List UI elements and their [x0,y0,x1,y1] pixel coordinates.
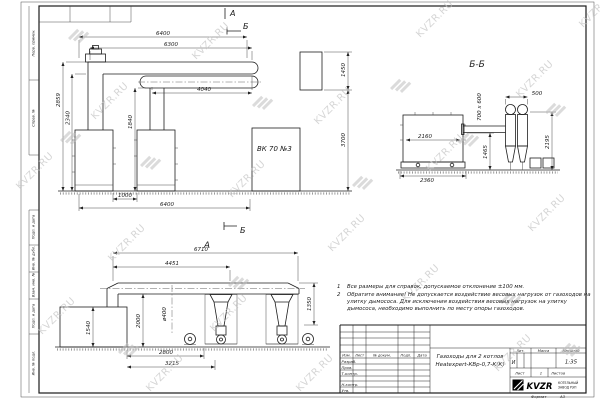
section-bb-title: Б-Б [469,60,485,70]
watermark-text: KVZR.RU [14,151,56,193]
unit-1-fan [217,335,226,344]
drawing-sheet: Перв. примен. Справ. № Подп. и дата Инв.… [0,0,600,400]
margin-label-vzam: Взам. инв. № [32,273,36,298]
technical-drawing-canvas: Перв. примен. Справ. № Подп. и дата Инв.… [0,0,600,400]
dim-1350: 1350 [307,297,313,311]
dim-6400-top: 6400 [156,31,170,37]
margin-strip-top [29,6,39,155]
kvzr-logo-watermark [352,172,373,193]
dim-3700: 3700 [341,133,347,147]
company-line1: КОТЕЛЬНЫЙ [558,380,579,385]
format-value: А3 [559,394,566,399]
cyclone-1-top [506,105,516,115]
watermark-text: KVZR.RU [526,193,568,235]
sheet-edge [21,2,594,397]
drawing-frame [21,2,594,397]
dim-6710: 6710 [194,247,208,253]
row-utv: Утв. [342,388,350,393]
margin-label-podp1: Подп. и дата [32,215,36,239]
dim-500: 500 [532,91,543,97]
unit-1-motor-hub [188,337,192,341]
cyclone-legs [511,162,523,170]
cyclone-2-top [518,105,528,115]
dim-1840: 1840 [128,115,134,129]
watermark-text: KVZR.RU [294,353,336,395]
unit-1-motor [185,334,196,345]
chimney-2-and-lower-duct [140,76,258,130]
cyclone-2-body [518,115,528,147]
margin-label-inv-podl: Инв. № подл. [32,351,36,376]
scale-value: 1:35 [565,360,578,366]
boiler-building [60,307,127,347]
dim-2000: 2000 [136,314,142,328]
col-podp: Подп. [401,353,412,357]
list-label: Лист [514,371,525,376]
row-prov: Пров. [342,365,353,370]
cyclone-1-body [506,115,516,147]
listov-label: Листов [550,371,566,376]
dim-2360: 2360 [420,178,434,184]
unit-2-cyclone [271,295,293,327]
dim-4451: 4451 [165,261,179,267]
fan-box-2 [543,158,554,168]
title-block: Изм. Лист № докум. Подп. Дата Разраб. Пр… [340,325,586,399]
chimney-cap [86,54,106,62]
base-roller-2 [450,163,454,167]
watermark-text: KVZR.RU [89,81,131,123]
kvzr-logo-watermark [390,75,411,96]
watermark-text: KVZR.RU [326,213,368,255]
watermark-text: KVZR.RU [208,293,250,335]
col-data: Дата [416,353,426,357]
main-duct-view-a [107,283,299,307]
notes-block: 1 Все размеры для справок, допускаемое о… [337,284,594,315]
dim-2800: 2800 [159,350,173,356]
kvzr-logo-watermark [545,99,566,120]
section-mark-a-label: А [229,9,235,18]
row-razrab: Разраб. [342,359,357,364]
unit-1-fan-hub [220,338,223,341]
format-label: Формат [531,394,547,399]
unit-2-fan [278,335,287,344]
watermark-layer: KVZR.RU KVZR.RU KVZR.RU KVZR.RU KVZR.RU … [14,0,600,394]
section-mark-b2-line [224,222,237,230]
dim-6300: 6300 [164,42,178,48]
duct-end-riser [300,52,322,90]
unit-2-motor-hub [306,337,310,341]
watermark-text: KVZR.RU [190,21,232,63]
flue-duct-bb [463,126,506,133]
dim-1465: 1465 [483,145,489,159]
kvzr-logo-watermark [228,272,249,293]
note-1: 1 Все размеры для справок, допускаемое о… [337,284,594,291]
col-izm: Изм. [342,353,350,357]
row-tkontr: Т.контр. [342,371,358,376]
dim-2340: 2340 [66,111,72,125]
watermark-text: KVZR.RU [577,0,600,30]
section-mark-b2-label: Б [240,226,246,235]
dim-2859: 2859 [56,93,62,107]
watermark-text: KVZR.RU [312,86,354,128]
kvzr-logo-watermark [68,25,89,46]
section-mark-b-label: Б [243,22,249,31]
inner-frame [39,6,586,393]
margin-label-perv: Перв. примен. [32,30,36,57]
dim-d400: ø400 [162,307,168,322]
base-roller-1 [416,163,420,167]
kvzr-logo-watermark [252,92,273,113]
chimney-cap-step [90,49,102,54]
dim-6400-bottom: 6400 [160,202,174,208]
dim-1450: 1450 [341,63,347,77]
corner-stamp-box [39,6,131,22]
note-2: 2 Обратите внимание! Не допускается возд… [337,292,594,313]
kvzr-logo-text: KVZR [527,382,553,392]
cyclone-cones [506,146,528,162]
dim-700x600: 700 х 600 [477,93,483,121]
dim-2195: 2195 [545,135,551,149]
massa-header: Масса [538,349,549,353]
unit-2-fan-hub [281,338,284,341]
watermark-text: KVZR.RU [144,353,186,395]
company-line2: ЗАВОД РЭП [558,386,577,390]
boiler-1-outline [75,130,113,191]
row-nkontr: Н.контр. [342,382,359,387]
note-1-number: 1 [337,284,344,291]
doc-title-line1: Газоходы для 2 котлов [437,354,504,360]
margin-label-sprav: Справ. № [32,109,36,127]
list-value: 1 [540,371,542,376]
col-list: Лист [354,353,365,357]
note-2-text: Обратите внимание! Не допускается воздей… [347,292,594,313]
fan-box-1 [530,158,541,168]
note-1-text: Все размеры для справок, допускаемое отк… [347,284,524,291]
margin-labels: Перв. примен. Справ. № Подп. и дата Инв.… [32,30,36,376]
dim-1540: 1540 [86,321,92,335]
kvzr-logo-watermark [560,339,581,360]
watermark-text: KVZR.RU [36,296,78,338]
dim-4040: 4040 [197,87,211,93]
top-view-extension-lines [66,40,352,211]
unit-2-bin [277,326,287,335]
boiler-details [72,140,178,185]
kvzr-logo-watermark [140,152,161,173]
note-2-number: 2 [337,292,344,313]
margin-label-inv-dubl: Инв. № дубл. [32,246,36,271]
dim-2160: 2160 [418,134,432,140]
existing-boiler-label: ВК 70 №3 [257,145,292,153]
chimney-cap-knob [93,46,99,50]
col-doc: № докум. [372,353,391,357]
boiler-2-outline [137,130,175,191]
unit-2-motor [303,334,314,345]
watermark-text: KVZR.RU [106,223,148,265]
kvzr-logo-watermark [118,339,139,360]
dim-1000: 1000 [118,193,132,199]
view-a: А 6710 4451 ø400 2000 1540 [55,241,330,370]
margin-label-podp2: Подп. и дата [32,304,36,328]
